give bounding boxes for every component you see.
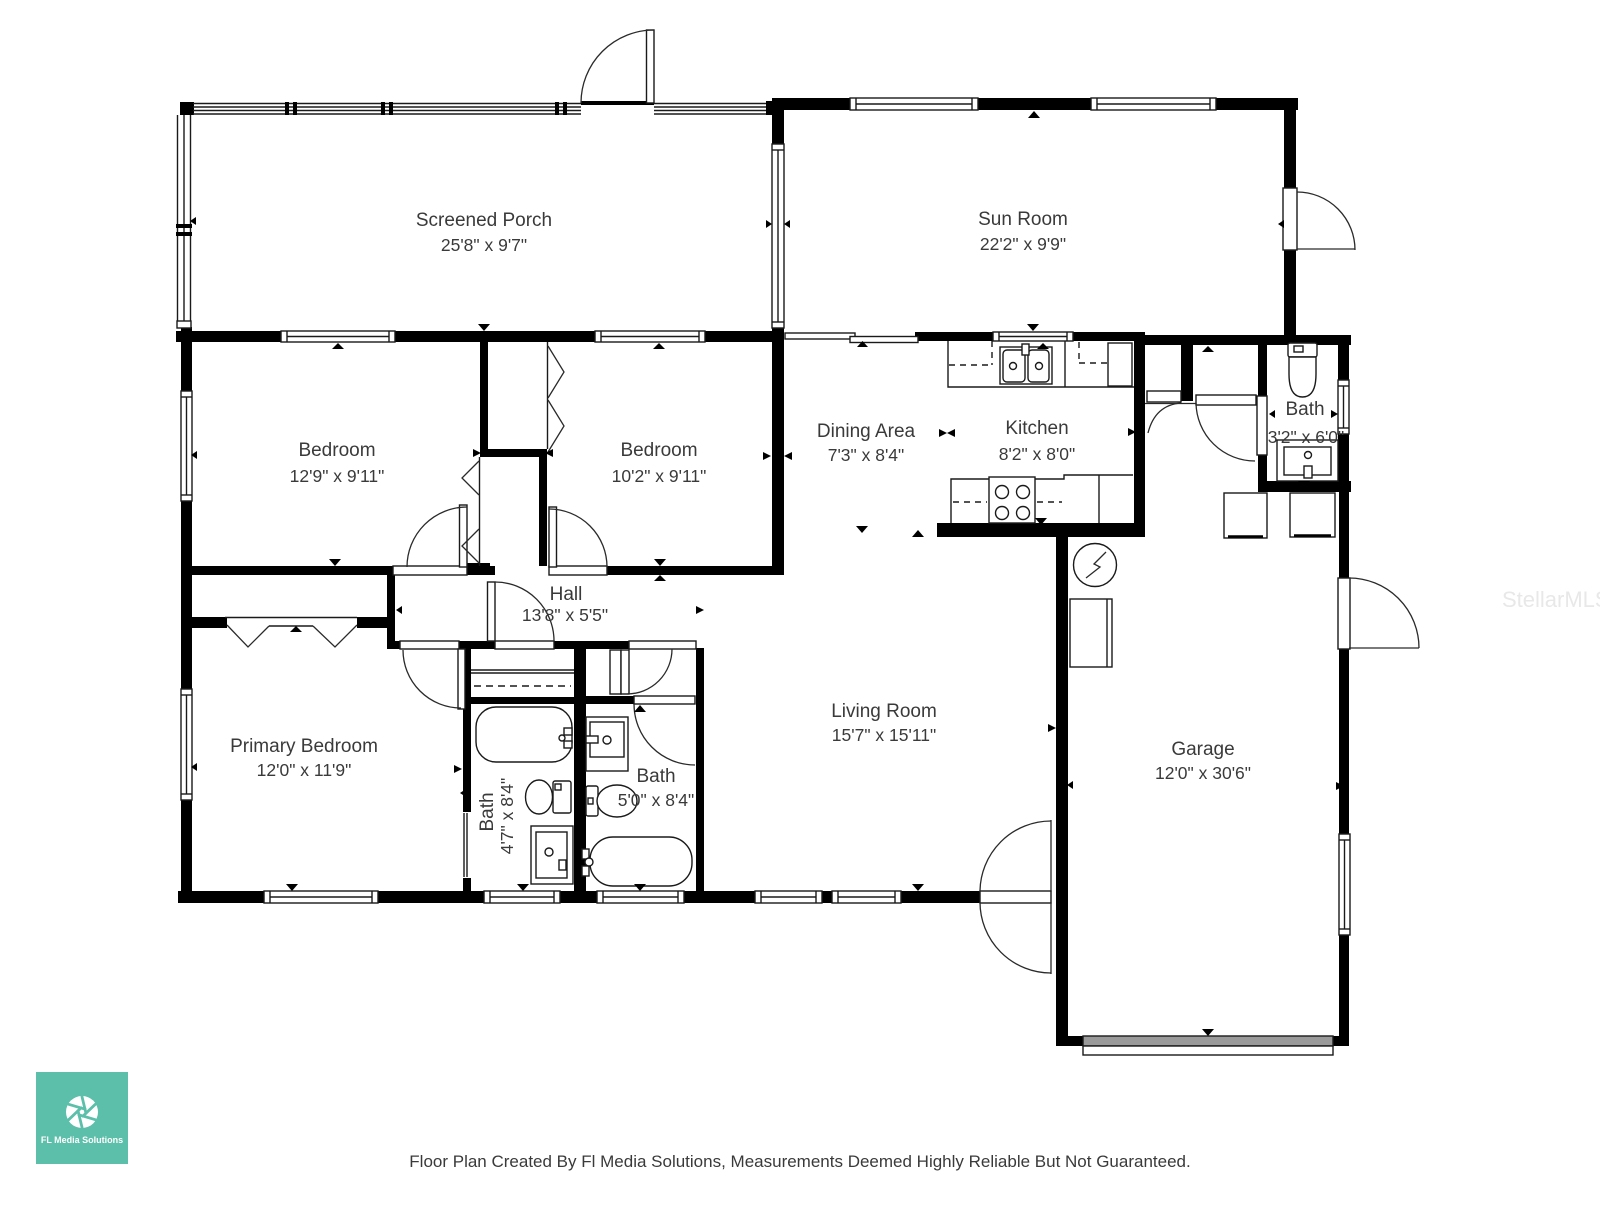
svg-text:Floor Plan Created By Fl Media: Floor Plan Created By Fl Media Solutions… <box>409 1152 1190 1171</box>
svg-text:4'7" x 8'4": 4'7" x 8'4" <box>497 778 517 855</box>
svg-text:Bedroom: Bedroom <box>298 440 375 461</box>
svg-text:12'0" x 30'6": 12'0" x 30'6" <box>1155 763 1251 783</box>
svg-text:8'2" x 8'0": 8'2" x 8'0" <box>999 444 1076 464</box>
svg-text:12'0" x 11'9": 12'0" x 11'9" <box>257 760 352 780</box>
svg-text:3'2" x 6'0": 3'2" x 6'0" <box>1268 427 1345 447</box>
svg-text:25'8" x 9'7": 25'8" x 9'7" <box>441 235 527 255</box>
svg-text:Living Room: Living Room <box>831 701 937 722</box>
svg-text:Bath: Bath <box>477 792 498 831</box>
svg-text:StellarMLS: StellarMLS <box>1502 587 1600 612</box>
svg-text:FL Media Solutions: FL Media Solutions <box>41 1135 123 1145</box>
svg-text:Bedroom: Bedroom <box>620 440 697 461</box>
svg-text:7'3" x 8'4": 7'3" x 8'4" <box>828 445 905 465</box>
svg-text:Hall: Hall <box>550 584 583 605</box>
svg-text:Bath: Bath <box>636 766 675 787</box>
svg-text:Screened Porch: Screened Porch <box>416 210 552 231</box>
svg-text:Garage: Garage <box>1171 739 1234 760</box>
svg-text:13'8" x 5'5": 13'8" x 5'5" <box>522 605 608 625</box>
svg-text:12'9" x 9'11": 12'9" x 9'11" <box>290 466 385 486</box>
svg-text:10'2" x 9'11": 10'2" x 9'11" <box>612 466 707 486</box>
svg-text:5'0" x 8'4": 5'0" x 8'4" <box>618 790 695 810</box>
svg-text:15'7" x 15'11": 15'7" x 15'11" <box>832 725 936 745</box>
svg-text:Bath: Bath <box>1285 399 1324 420</box>
svg-text:Kitchen: Kitchen <box>1005 418 1068 439</box>
svg-text:22'2" x 9'9": 22'2" x 9'9" <box>980 234 1066 254</box>
svg-text:Primary Bedroom: Primary Bedroom <box>230 736 378 757</box>
svg-text:Sun Room: Sun Room <box>978 209 1068 230</box>
svg-text:Dining Area: Dining Area <box>817 421 916 442</box>
